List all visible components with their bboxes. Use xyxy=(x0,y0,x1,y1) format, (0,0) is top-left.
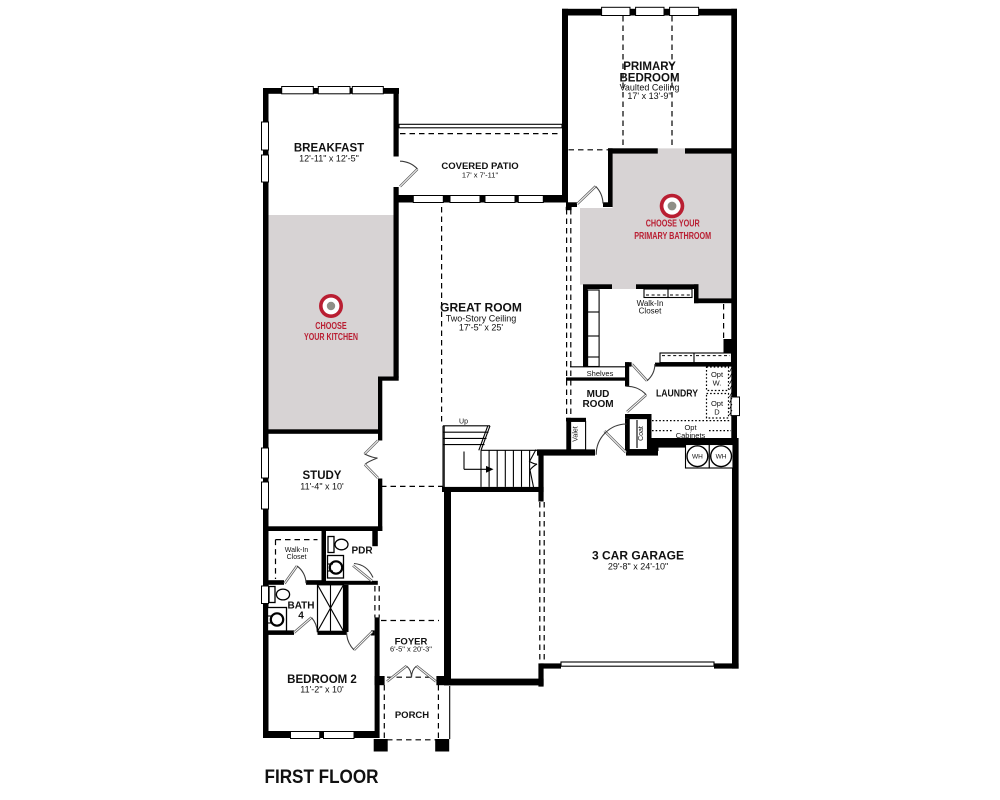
svg-text:ROOM: ROOM xyxy=(582,399,613,410)
svg-text:Shelves: Shelves xyxy=(587,369,614,378)
svg-text:Up: Up xyxy=(459,419,468,426)
svg-text:17'-5" x 25': 17'-5" x 25' xyxy=(459,323,503,333)
svg-text:Walk-In: Walk-In xyxy=(285,547,309,554)
svg-text:PRIMARY BATHROOM: PRIMARY BATHROOM xyxy=(634,231,711,242)
svg-text:GREAT ROOM: GREAT ROOM xyxy=(440,301,522,315)
svg-text:11'-4" x 10': 11'-4" x 10' xyxy=(300,482,344,492)
svg-text:LAUNDRY: LAUNDRY xyxy=(656,388,698,400)
svg-text:11'-2" x 10': 11'-2" x 10' xyxy=(300,685,344,695)
svg-text:YOUR KITCHEN: YOUR KITCHEN xyxy=(304,332,358,343)
svg-text:Closet: Closet xyxy=(287,554,307,561)
svg-text:CHOOSE YOUR: CHOOSE YOUR xyxy=(646,219,701,230)
svg-text:WH: WH xyxy=(692,454,703,461)
svg-text:WH: WH xyxy=(716,454,727,461)
svg-text:Coat: Coat xyxy=(638,426,645,441)
svg-text:PRIMARY: PRIMARY xyxy=(623,61,676,73)
svg-text:3 CAR GARAGE: 3 CAR GARAGE xyxy=(592,549,684,563)
svg-text:W.: W. xyxy=(713,379,722,388)
svg-text:6'-5" x 20'-3": 6'-5" x 20'-3" xyxy=(390,645,432,654)
svg-text:STUDY: STUDY xyxy=(303,470,342,482)
svg-text:4: 4 xyxy=(298,611,304,622)
svg-text:Closet: Closet xyxy=(639,307,662,316)
svg-text:Valet: Valet xyxy=(573,426,580,441)
svg-text:D: D xyxy=(714,408,720,417)
svg-text:17' x 7'-11": 17' x 7'-11" xyxy=(462,171,499,180)
svg-text:FIRST FLOOR: FIRST FLOOR xyxy=(265,766,379,788)
svg-text:Cabinets: Cabinets xyxy=(676,431,706,440)
svg-text:CHOOSE: CHOOSE xyxy=(315,321,347,332)
svg-text:17' x 13'-9": 17' x 13'-9" xyxy=(627,91,671,101)
svg-text:PORCH: PORCH xyxy=(395,710,429,721)
svg-text:12'-11" x 12'-5": 12'-11" x 12'-5" xyxy=(299,154,359,164)
svg-text:PDR: PDR xyxy=(351,546,373,557)
svg-text:29'-8" x 24'-10": 29'-8" x 24'-10" xyxy=(608,562,668,572)
